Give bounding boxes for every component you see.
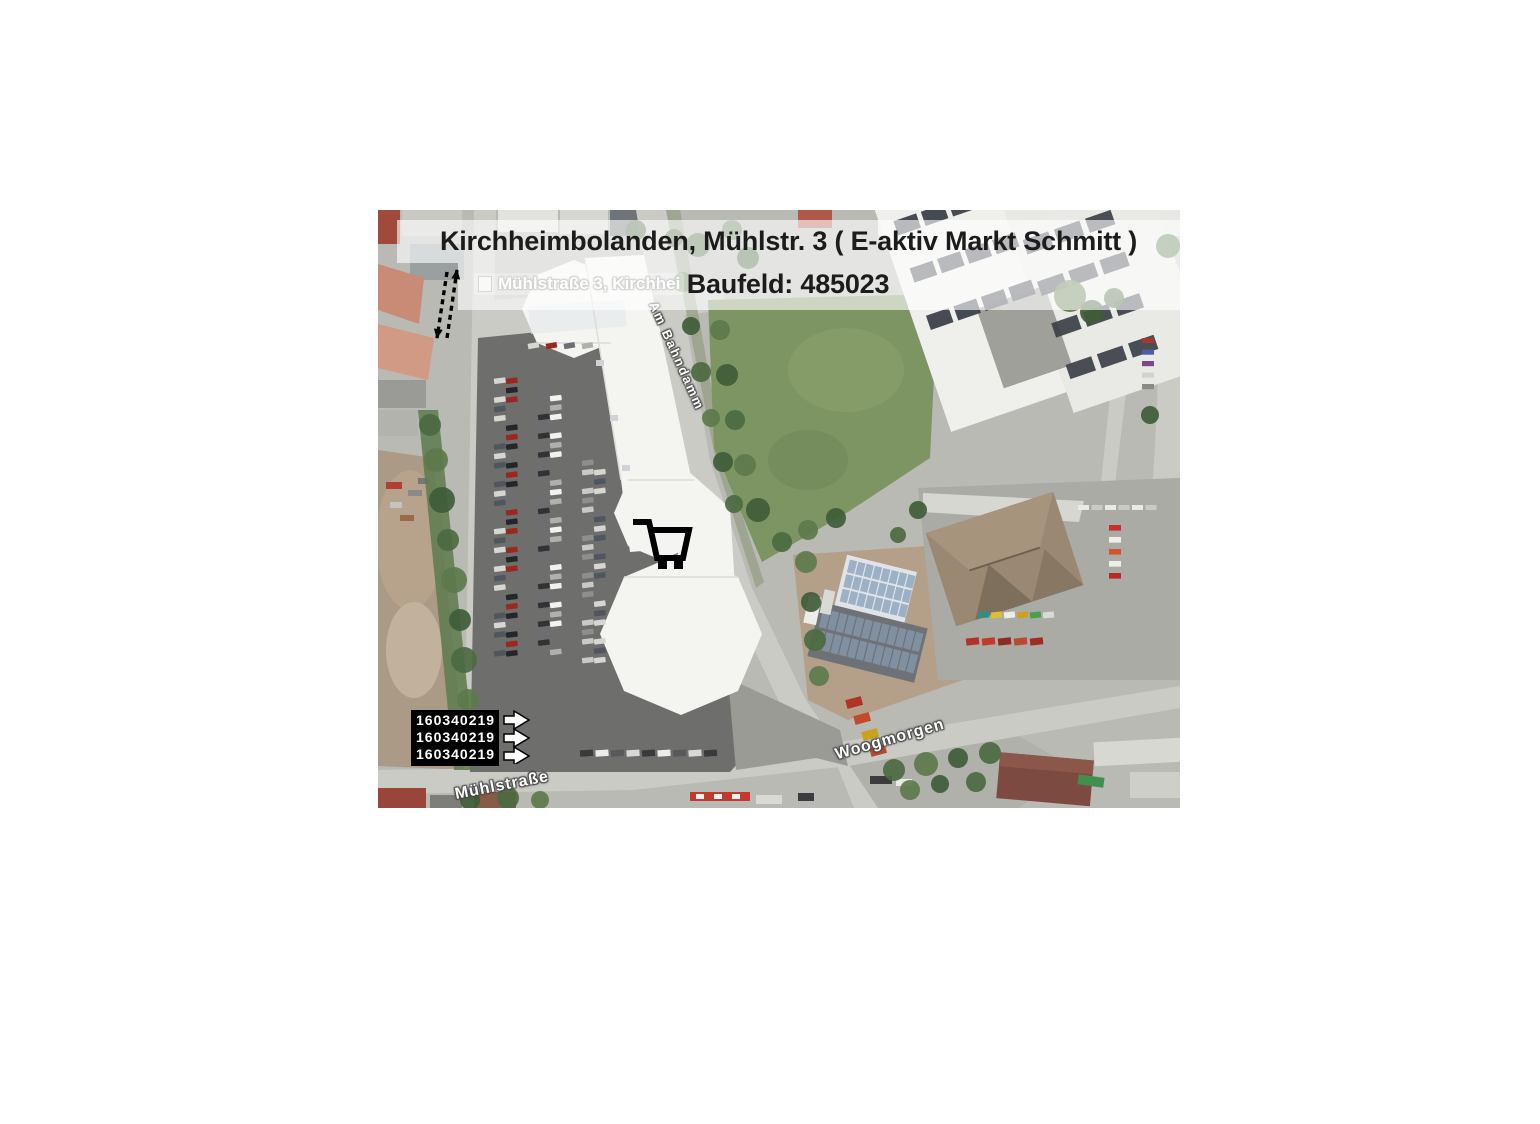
shopping-cart-icon xyxy=(631,513,697,571)
parcel-id: 160340219 xyxy=(416,729,495,746)
slide-page: Mühlstraße 3, Kirchhei Kirchheimbolanden… xyxy=(0,0,1540,1124)
parcel-arrow-icons xyxy=(502,710,532,764)
aerial-map: Mühlstraße 3, Kirchhei Kirchheimbolanden… xyxy=(378,210,1180,808)
parcel-id-box: 160340219 160340219 160340219 xyxy=(411,710,499,766)
parcel-id: 160340219 xyxy=(416,746,495,763)
map-title: Kirchheimbolanden, Mühlstr. 3 ( E-aktiv … xyxy=(397,220,1180,263)
dashed-double-arrow-icon xyxy=(428,260,472,352)
arrow-right-icon xyxy=(504,711,529,729)
parcel-id: 160340219 xyxy=(416,712,495,729)
arrow-right-icon xyxy=(504,747,529,764)
map-subtitle: Baufeld: 485023 xyxy=(458,261,1118,308)
arrow-right-icon xyxy=(504,729,529,747)
